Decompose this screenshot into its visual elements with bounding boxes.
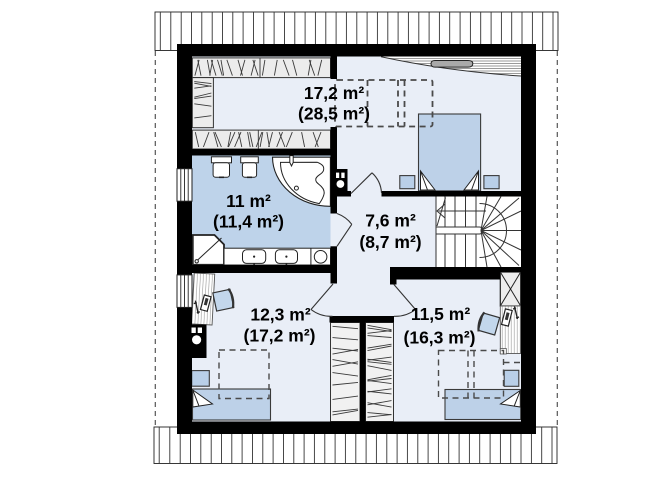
- svg-text:17,2 m²: 17,2 m²: [304, 83, 364, 103]
- svg-text:(28,5 m²): (28,5 m²): [298, 104, 370, 124]
- svg-text:(16,3 m²): (16,3 m²): [404, 328, 476, 348]
- svg-text:(17,2 m²): (17,2 m²): [244, 326, 316, 346]
- svg-text:11 m²: 11 m²: [226, 191, 271, 211]
- svg-text:11,5 m²: 11,5 m²: [411, 304, 471, 324]
- svg-text:12,3 m²: 12,3 m²: [250, 305, 310, 325]
- svg-text:7,6 m²: 7,6 m²: [365, 211, 416, 231]
- svg-text:(11,4 m²): (11,4 m²): [213, 212, 284, 232]
- svg-text:(8,7 m²): (8,7 m²): [359, 232, 421, 252]
